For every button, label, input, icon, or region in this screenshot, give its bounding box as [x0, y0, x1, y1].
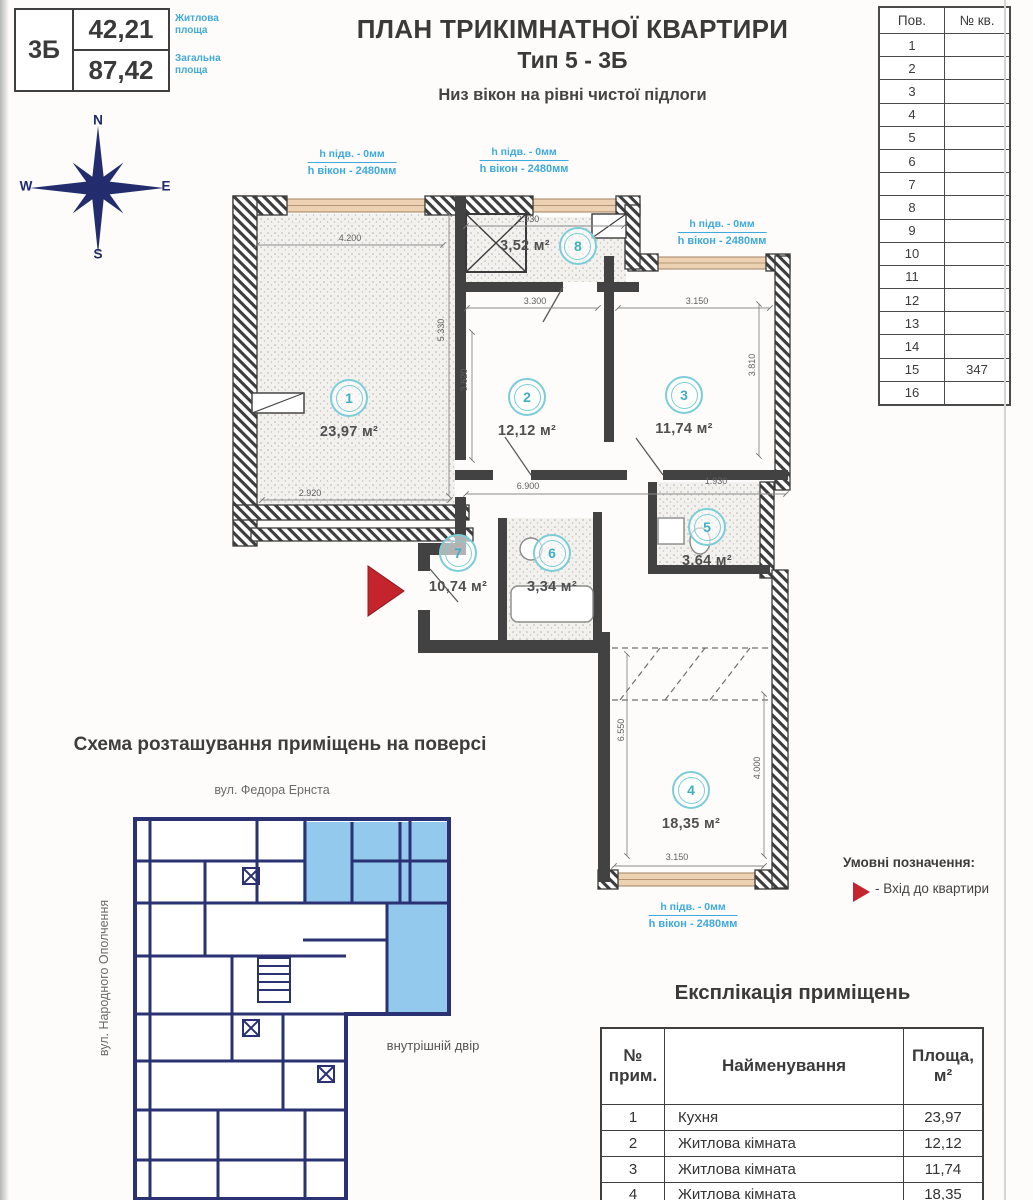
- courtyard-label: внутрішній двір: [358, 1038, 508, 1053]
- legend-entrance-label: - Вхід до квартири: [875, 881, 989, 896]
- room-number-circle: 2: [508, 378, 546, 416]
- table-row: 14: [879, 335, 1010, 358]
- room-number-circle: 8: [559, 227, 597, 265]
- table-row: 4 Житлова кімната 18,35: [601, 1182, 983, 1200]
- room-label-2: 2 12,12 м²: [467, 378, 587, 439]
- floors-col-header: Пов.: [879, 7, 945, 34]
- compass-rose-icon: [30, 126, 164, 254]
- apartment-info-box: 3Б 42,21 87,42: [14, 8, 170, 92]
- street-label-left: вул. Народного Ополчення: [97, 900, 111, 1056]
- total-area-label: Загальна площа: [175, 53, 239, 76]
- building-schema: [135, 819, 449, 1199]
- legend-title: Умовні позначення:: [843, 855, 975, 870]
- room-num-cell: 3: [601, 1156, 665, 1182]
- room-num-cell: 2: [601, 1130, 665, 1156]
- apt-cell: [945, 173, 1011, 196]
- room-label-1: 1 23,97 м²: [289, 379, 409, 440]
- dimension-label: 4.200: [339, 233, 362, 243]
- floor-cell: 11: [879, 265, 945, 288]
- room-label-8: 3,52 м² 8: [500, 227, 597, 265]
- floor-cell: 12: [879, 289, 945, 312]
- room-area-cell: 23,97: [904, 1104, 984, 1130]
- table-row: 7: [879, 173, 1010, 196]
- table-row: 16: [879, 381, 1010, 405]
- apartment-type: 3Б: [16, 10, 74, 90]
- floor-cell: 6: [879, 149, 945, 172]
- table-row: 1: [879, 34, 1010, 57]
- floor-cell: 4: [879, 103, 945, 126]
- apt-cell: [945, 80, 1011, 103]
- dimension-label: 5.330: [436, 319, 446, 342]
- apt-cell: [945, 219, 1011, 242]
- table-row: 10: [879, 242, 1010, 265]
- room-name-cell: Житлова кімната: [665, 1130, 904, 1156]
- apt-cell: [945, 103, 1011, 126]
- legend-entrance-icon: [853, 882, 870, 902]
- living-area-label: Житлова площа: [175, 13, 239, 36]
- apt-cell: [945, 34, 1011, 57]
- explication-title: Експлікація приміщень: [600, 981, 985, 1005]
- dimension-label: 2.920: [299, 488, 322, 498]
- dimension-label: 3.150: [666, 852, 689, 862]
- floors-table: Пов. № кв. 1 2 3 4 5 6 7 8 9 10 11 12 13…: [878, 6, 1011, 406]
- room-number-circle: 1: [330, 379, 368, 417]
- compass-north-label: N: [93, 113, 103, 128]
- dimension-label: 3.300: [524, 296, 547, 306]
- window-height-label: h підв. - 0мм h вікон - 2480мм: [649, 901, 738, 930]
- dimension-label: 1.930: [705, 476, 728, 486]
- table-row: 6: [879, 149, 1010, 172]
- apt-cell: [945, 381, 1011, 405]
- room-area-cell: 18,35: [904, 1182, 984, 1200]
- room-area-cell: 12,12: [904, 1130, 984, 1156]
- room-number-circle: 5: [688, 508, 726, 546]
- living-area-value: 42,21: [74, 10, 168, 51]
- table-row: 2: [879, 57, 1010, 80]
- table-row: 4: [879, 103, 1010, 126]
- floor-cell: 9: [879, 219, 945, 242]
- room-number-circle: 7: [439, 534, 477, 572]
- table-row: 9: [879, 219, 1010, 242]
- page-subtitle: Тип 5 - 3Б: [320, 47, 825, 74]
- apt-col-header: № кв.: [945, 7, 1011, 34]
- table-row: 12: [879, 289, 1010, 312]
- apt-cell: [945, 312, 1011, 335]
- table-row: 11: [879, 265, 1010, 288]
- compass-east-label: E: [161, 179, 170, 194]
- wardrobe-dashed: [612, 648, 768, 700]
- explication-table: № прим. Найменування Площа, м² 1 Кухня 2…: [600, 1027, 984, 1200]
- room-number-circle: 3: [665, 376, 703, 414]
- apt-cell: [945, 289, 1011, 312]
- room-label-4: 4 18,35 м²: [631, 771, 751, 832]
- compass-west-label: W: [20, 179, 33, 194]
- apt-cell: [945, 265, 1011, 288]
- table-row: 1 Кухня 23,97: [601, 1104, 983, 1130]
- col-header-area: Площа, м²: [904, 1028, 984, 1104]
- apt-cell: [945, 335, 1011, 358]
- window-height-label: h підв. - 0мм h вікон - 2480мм: [678, 218, 767, 247]
- table-row: 13: [879, 312, 1010, 335]
- room-number-circle: 6: [533, 534, 571, 572]
- dimension-label: 3.620: [459, 369, 469, 392]
- table-row: 2 Житлова кімната 12,12: [601, 1130, 983, 1156]
- floor-cell: 1: [879, 34, 945, 57]
- scan-edge-shadow: [0, 0, 9, 1200]
- compass-south-label: S: [93, 247, 102, 262]
- table-row: 3 Житлова кімната 11,74: [601, 1156, 983, 1182]
- apt-cell: [945, 242, 1011, 265]
- col-header-num: № прим.: [601, 1028, 665, 1104]
- floor-cell: 10: [879, 242, 945, 265]
- floor-cell: 16: [879, 381, 945, 405]
- floor-cell: 7: [879, 173, 945, 196]
- table-row: 8: [879, 196, 1010, 219]
- page-title: ПЛАН ТРИКІМНАТНОЇ КВАРТИРИ: [320, 14, 825, 45]
- floor-cell: 8: [879, 196, 945, 219]
- apt-cell: [945, 149, 1011, 172]
- room-label-5: 5 3,64 м²: [647, 508, 767, 569]
- window-note: Низ вікон на рівні чистої підлоги: [320, 86, 825, 105]
- room-num-cell: 1: [601, 1104, 665, 1130]
- street-label-top: вул. Федора Ернста: [172, 783, 372, 797]
- floor-cell: 13: [879, 312, 945, 335]
- floor-cell: 3: [879, 80, 945, 103]
- dimension-label: 6.550: [616, 719, 626, 742]
- dimension-label: 3.810: [747, 354, 757, 377]
- floor-plan-page: 3Б 42,21 87,42 Житлова площа Загальна пл…: [0, 0, 1033, 1200]
- apt-cell: [945, 196, 1011, 219]
- table-row: 15347: [879, 358, 1010, 381]
- col-header-name: Найменування: [665, 1028, 904, 1104]
- dimension-label: 3.150: [686, 296, 709, 306]
- window-height-label: h підв. - 0мм h вікон - 2480мм: [480, 146, 569, 175]
- table-row: 3: [879, 80, 1010, 103]
- room-area-cell: 11,74: [904, 1156, 984, 1182]
- room-label-7: 7 10,74 м²: [398, 534, 518, 595]
- apt-cell: 347: [945, 358, 1011, 381]
- total-area-value: 87,42: [74, 51, 168, 90]
- room-number-circle: 4: [672, 771, 710, 809]
- scan-edge-line: [1004, 0, 1006, 1200]
- dimension-label: 6.900: [517, 481, 540, 491]
- floor-cell: 14: [879, 335, 945, 358]
- room-name-cell: Житлова кімната: [665, 1156, 904, 1182]
- dimension-label: 2.930: [517, 214, 540, 224]
- floor-cell: 5: [879, 126, 945, 149]
- apt-cell: [945, 57, 1011, 80]
- floor-cell: 15: [879, 358, 945, 381]
- dimension-label: 4.000: [752, 757, 762, 780]
- table-row: 5: [879, 126, 1010, 149]
- room-label-3: 3 11,74 м²: [624, 376, 744, 437]
- apt-cell: [945, 126, 1011, 149]
- floor-cell: 2: [879, 57, 945, 80]
- window-height-label: h підв. - 0мм h вікон - 2480мм: [308, 148, 397, 177]
- room-num-cell: 4: [601, 1182, 665, 1200]
- room-name-cell: Кухня: [665, 1104, 904, 1130]
- room-name-cell: Житлова кімната: [665, 1182, 904, 1200]
- schema-title: Схема розташування приміщень на поверсі: [65, 734, 495, 756]
